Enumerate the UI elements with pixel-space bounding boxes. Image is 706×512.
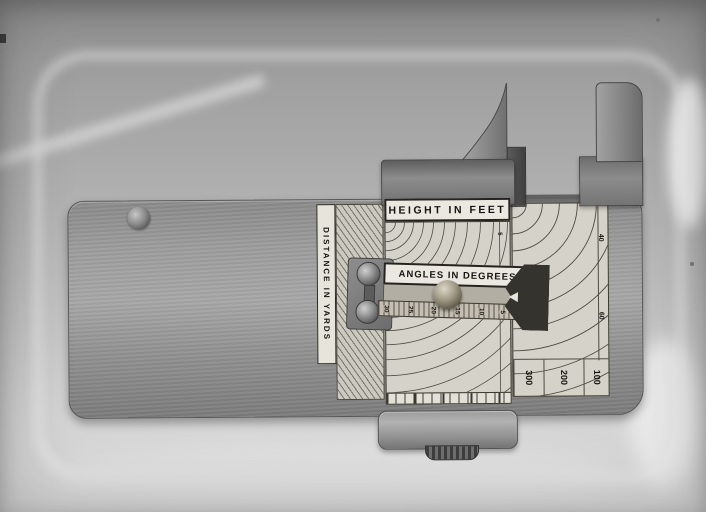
right-sight-block <box>595 82 643 162</box>
height-scale-label: HEIGHT IN FEET <box>384 198 510 222</box>
plate-screw <box>127 206 150 229</box>
distance-200-label: 200 <box>543 359 584 395</box>
angle-tick-5: 5 <box>499 310 506 314</box>
window-5-label: 5 <box>498 231 501 237</box>
angle-tick-25: 25 <box>406 305 413 312</box>
height-60-label: 60 <box>597 312 605 319</box>
distance-scale-label: DISTANCE IN YARDS <box>321 227 331 341</box>
slider-bottom-scale <box>386 392 512 405</box>
right-sight-base <box>579 156 643 206</box>
photograph: DISTANCE IN YARDS 700 40 <box>0 0 706 512</box>
pointer-arrow-icon <box>509 292 518 302</box>
distance-300-label: 300 <box>513 360 544 396</box>
angle-tick-20: 20 <box>430 306 437 313</box>
angle-tick-15: 15 <box>454 307 461 314</box>
distance-scale-strip: DISTANCE IN YARDS <box>316 204 336 364</box>
knurled-nut <box>425 445 479 460</box>
angle-tick-10: 10 <box>477 307 484 314</box>
slider-foot <box>378 410 518 450</box>
rangefinder-instrument: DISTANCE IN YARDS 700 40 <box>0 0 706 512</box>
distance-100-label: 100 <box>583 359 609 395</box>
height-40-label: 40 <box>597 234 605 241</box>
angles-arm: ANGLES IN DEGREES 30 25 20 15 10 5 0 <box>346 253 563 339</box>
angle-tick-30: 30 <box>383 305 390 312</box>
